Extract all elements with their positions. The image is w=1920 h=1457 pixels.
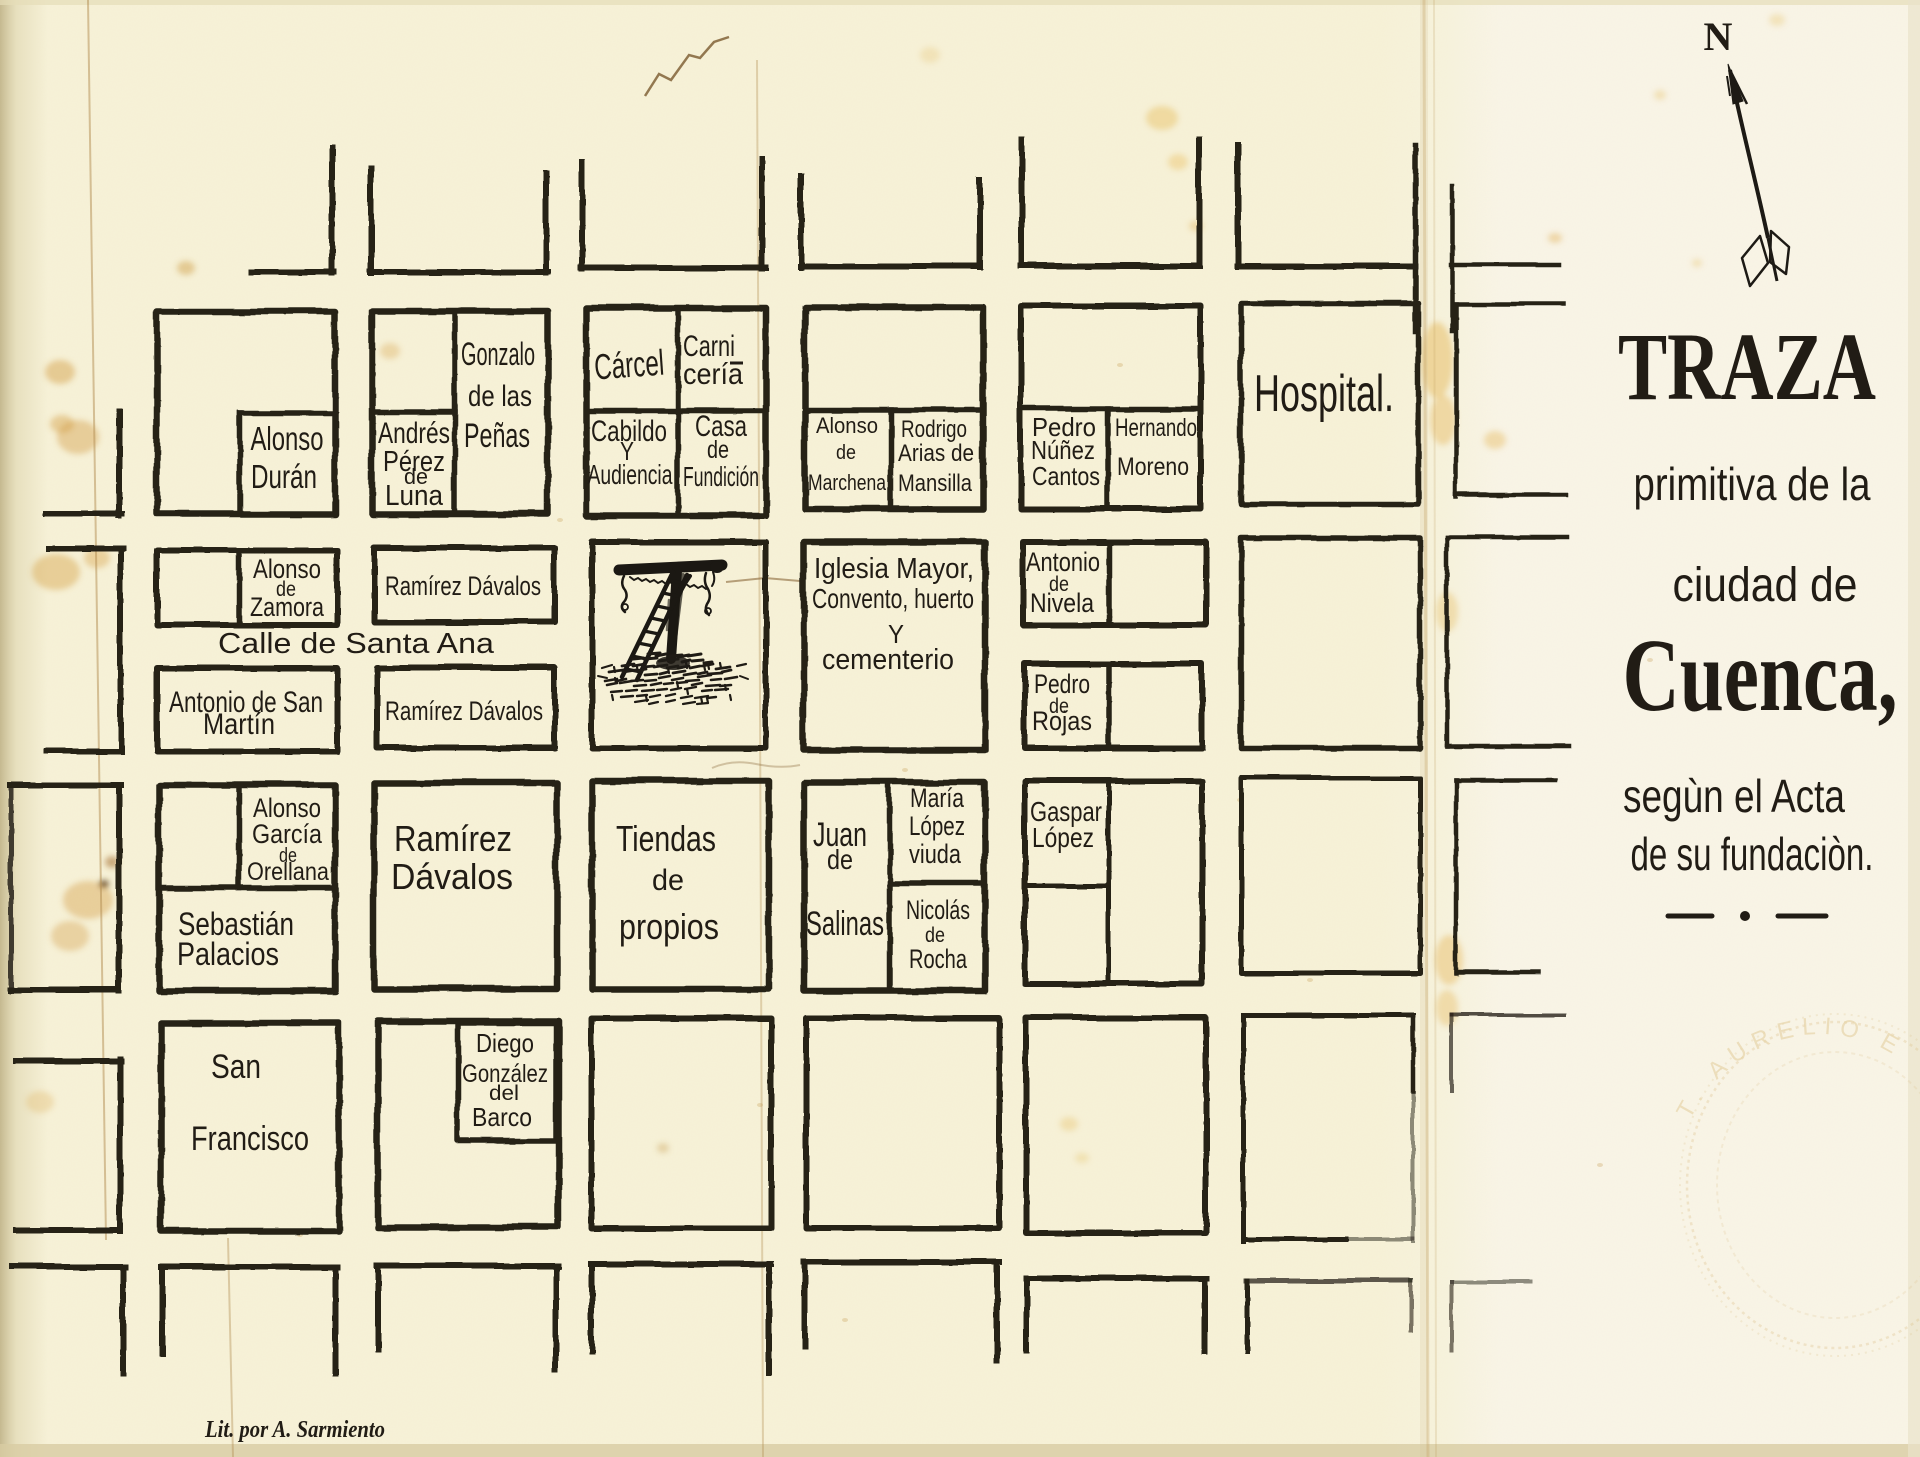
svg-text:de: de xyxy=(707,436,729,464)
svg-text:ciudad de: ciudad de xyxy=(1673,559,1858,612)
svg-text:de: de xyxy=(827,844,853,875)
svg-text:Arias de: Arias de xyxy=(898,440,974,467)
svg-text:Alonso: Alonso xyxy=(816,413,878,438)
svg-text:Nivela: Nivela xyxy=(1030,588,1095,618)
svg-text:de: de xyxy=(836,442,856,464)
svg-text:Diego: Diego xyxy=(476,1028,534,1058)
svg-text:Luna: Luna xyxy=(385,480,444,512)
svg-text:Rocha: Rocha xyxy=(909,944,968,974)
svg-text:Ramírez Dávalos: Ramírez Dávalos xyxy=(385,571,541,601)
svg-text:Hospital.: Hospital. xyxy=(1254,365,1394,423)
svg-text:de las: de las xyxy=(468,380,532,413)
svg-text:N: N xyxy=(1704,14,1733,59)
svg-text:propios: propios xyxy=(619,906,719,947)
svg-text:Moreno: Moreno xyxy=(1117,453,1189,481)
svg-text:Calle de Santa Ana: Calle de Santa Ana xyxy=(218,628,495,660)
svg-text:Francisco: Francisco xyxy=(191,1120,309,1158)
svg-text:Rodrigo: Rodrigo xyxy=(901,416,967,443)
svg-text:Orellana: Orellana xyxy=(247,858,329,886)
svg-text:Martín: Martín xyxy=(203,708,275,741)
svg-text:Ramírez Dávalos: Ramírez Dávalos xyxy=(385,696,543,726)
svg-text:Audiencia: Audiencia xyxy=(588,459,673,490)
svg-text:Palacios: Palacios xyxy=(177,936,279,972)
svg-text:Barco: Barco xyxy=(472,1102,532,1132)
svg-text:María: María xyxy=(910,783,965,813)
svg-text:Marchena: Marchena xyxy=(808,470,887,495)
svg-text:Peñas: Peñas xyxy=(464,417,530,455)
svg-text:Gonzalo: Gonzalo xyxy=(461,336,535,372)
svg-text:Cárcel: Cárcel xyxy=(593,342,666,388)
svg-text:Dávalos: Dávalos xyxy=(391,856,513,897)
svg-text:Mansilla: Mansilla xyxy=(898,470,973,497)
svg-text:Tiendas: Tiendas xyxy=(616,818,716,859)
svg-text:Alonso: Alonso xyxy=(251,420,324,457)
svg-text:Fundición: Fundición xyxy=(683,461,759,492)
svg-text:viuda: viuda xyxy=(909,839,962,869)
svg-text:López: López xyxy=(909,811,965,841)
svg-text:primitiva de la: primitiva de la xyxy=(1634,458,1871,510)
svg-text:Cuenca,: Cuenca, xyxy=(1623,618,1898,733)
svg-text:Rojas: Rojas xyxy=(1032,706,1092,736)
svg-text:San: San xyxy=(211,1048,261,1086)
svg-text:Hernando: Hernando xyxy=(1115,414,1197,442)
svg-text:Lit. por A. Sarmiento: Lit. por A. Sarmiento xyxy=(204,1417,385,1443)
svg-text:Durán: Durán xyxy=(251,458,317,495)
svg-text:de su fundaciòn.: de su fundaciòn. xyxy=(1631,828,1874,880)
svg-text:Nicolás: Nicolás xyxy=(906,895,970,925)
svg-text:Salinas: Salinas xyxy=(806,905,884,943)
svg-text:TRAZA: TRAZA xyxy=(1618,313,1876,420)
svg-text:Ramírez: Ramírez xyxy=(394,818,512,859)
svg-text:López: López xyxy=(1032,822,1094,853)
svg-text:Convento, huerto: Convento, huerto xyxy=(812,583,974,614)
svg-text:cementerio: cementerio xyxy=(822,644,954,676)
svg-text:Zamora: Zamora xyxy=(250,592,325,622)
svg-text:segùn el Acta: segùn el Acta xyxy=(1623,770,1845,822)
svg-text:Iglesia Mayor,: Iglesia Mayor, xyxy=(814,553,974,585)
svg-text:Cantos: Cantos xyxy=(1032,461,1100,491)
svg-text:cería: cería xyxy=(683,358,743,391)
svg-text:de: de xyxy=(652,864,684,897)
